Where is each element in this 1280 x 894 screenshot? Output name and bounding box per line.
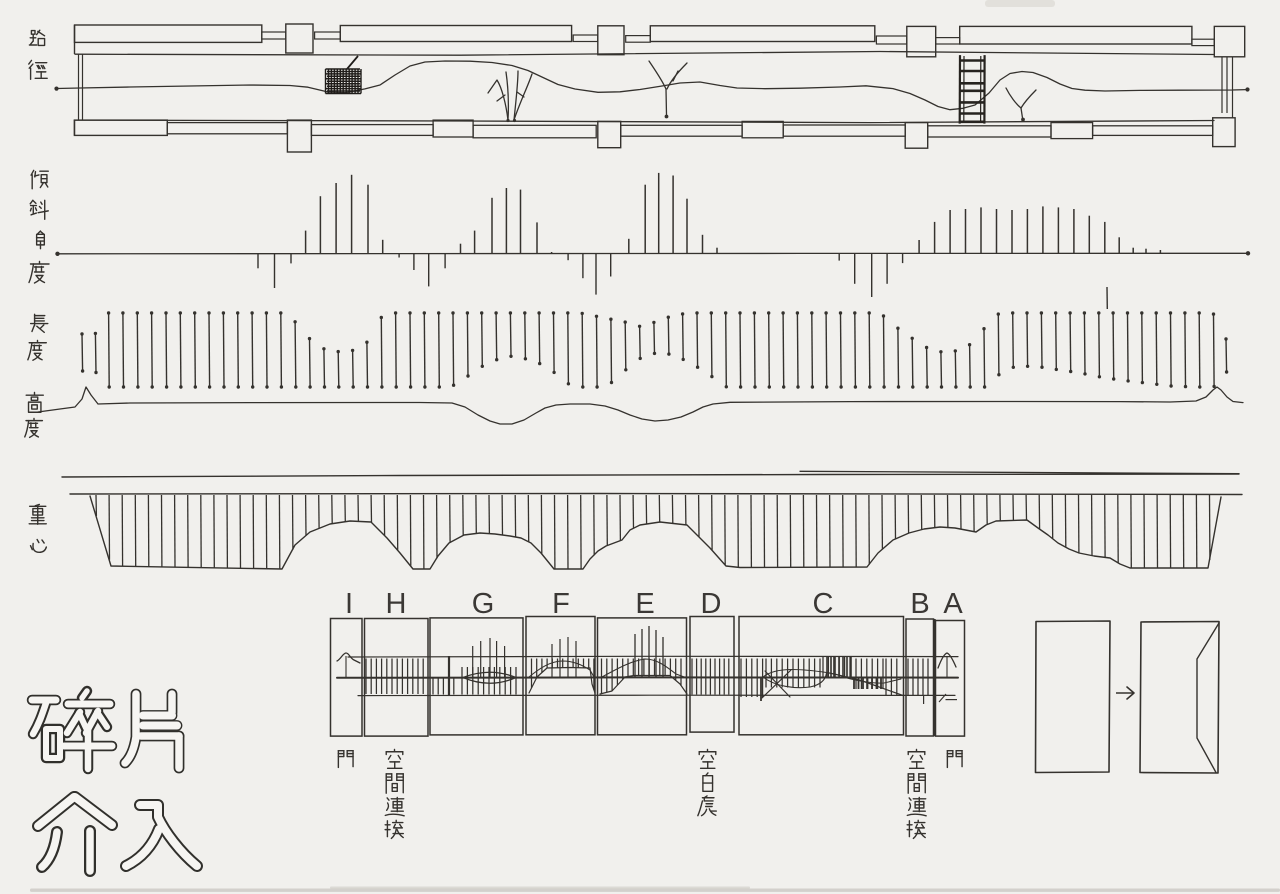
svg-text:F: F xyxy=(552,588,570,620)
svg-text:I: I xyxy=(345,588,353,620)
svg-text:C: C xyxy=(813,588,834,620)
svg-text:G: G xyxy=(472,588,495,620)
svg-text:H: H xyxy=(386,588,407,620)
svg-text:B: B xyxy=(910,588,929,620)
svg-text:D: D xyxy=(701,588,722,620)
svg-text:A: A xyxy=(943,588,963,620)
svg-text:E: E xyxy=(635,588,654,620)
